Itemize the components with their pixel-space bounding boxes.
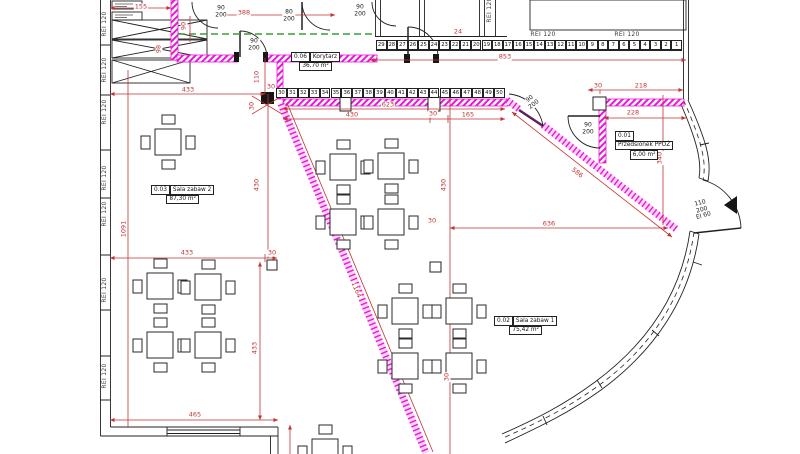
chair-icon: [318, 425, 332, 435]
chair-icon: [384, 240, 398, 250]
locker-cell: 38: [363, 88, 374, 98]
table-with-chairs: [330, 209, 357, 236]
chair-icon: [201, 363, 215, 373]
table-with-chairs: [195, 274, 222, 301]
chair-icon: [316, 215, 326, 229]
chair-icon: [201, 305, 215, 315]
dimension-label: 30: [249, 101, 256, 111]
locker-cell: 33: [309, 88, 320, 98]
dimension-label: 30: [444, 372, 451, 382]
chair-icon: [153, 259, 167, 269]
locker-cell: 10: [576, 40, 587, 50]
table-with-chairs: [392, 298, 419, 325]
table-with-chairs: [312, 439, 339, 454]
table-with-chairs: [147, 332, 174, 359]
dimension-label: 853: [498, 54, 512, 61]
chair-icon: [384, 195, 398, 205]
chair-icon: [452, 284, 466, 294]
locker-cell: 24: [429, 40, 440, 50]
dimension-label: 165: [461, 112, 475, 119]
locker-cell: 25: [418, 40, 429, 50]
room-name: Korytarz: [310, 52, 340, 62]
locker-cell: 3: [650, 40, 661, 50]
locker-cell: 7: [608, 40, 619, 50]
dimension-label: 1164: [349, 280, 362, 300]
chair-icon: [452, 329, 466, 339]
chair-icon: [343, 445, 353, 454]
chair-icon: [432, 359, 442, 373]
locker-cell: 43: [418, 88, 429, 98]
locker-cell: 50: [494, 88, 505, 98]
fire-rating-label: REI 120: [102, 11, 109, 36]
door-size-label: 80 200: [282, 10, 295, 23]
chair-icon: [161, 160, 175, 170]
chair-icon: [378, 359, 388, 373]
room-number: 0.06: [291, 52, 310, 62]
door-size-label: 90 200: [214, 6, 227, 19]
chair-icon: [378, 304, 388, 318]
locker-cell: 11: [566, 40, 577, 50]
table-with-chairs: [195, 332, 222, 359]
room-number: 0.02: [494, 316, 513, 326]
floor-plan-canvas: 1559098388248534331103062343030165302182…: [0, 0, 800, 454]
locker-cell: 23: [439, 40, 450, 50]
door-size-label: 110 200 EI 60: [691, 198, 713, 221]
table-with-chairs: [446, 298, 473, 325]
dimension-label: 636: [542, 221, 556, 228]
door-size-label: 90 200: [247, 39, 260, 52]
door-size-label: 90 200: [523, 93, 542, 112]
labels-layer: 1559098388248534331103062343030165302182…: [0, 0, 800, 454]
dimension-label: 1091: [121, 220, 128, 239]
chair-icon: [141, 135, 151, 149]
chair-icon: [298, 445, 308, 454]
locker-cell: 47: [461, 88, 472, 98]
dimension-label: 430: [254, 178, 261, 192]
door-size-label: 90 200: [581, 123, 594, 136]
chair-icon: [133, 279, 143, 293]
dimension-label: 430: [345, 112, 359, 119]
locker-cell: 21: [460, 40, 471, 50]
locker-cell: 18: [492, 40, 503, 50]
dimension-label: 433: [180, 250, 194, 257]
locker-cell: 42: [407, 88, 418, 98]
locker-cell: 41: [396, 88, 407, 98]
room-number: 0.01: [615, 131, 634, 141]
table-with-chairs: [155, 129, 182, 156]
locker-cell: 40: [385, 88, 396, 98]
locker-cell: 44: [429, 88, 440, 98]
dimension-label: 30: [427, 218, 437, 225]
chair-icon: [181, 338, 191, 352]
chair-icon: [398, 384, 412, 394]
chair-icon: [477, 304, 487, 318]
room-label: 0.06 Korytarz 36,70 m²: [291, 52, 340, 71]
table-with-chairs: [378, 209, 405, 236]
chair-icon: [336, 240, 350, 250]
chair-icon: [409, 215, 419, 229]
dimension-label: 623: [381, 102, 395, 109]
fire-rating-label: REI 120: [102, 363, 109, 388]
room-label: 0.02 Sala zabaw 1 75,42 m²: [494, 316, 557, 335]
table-with-chairs: [147, 273, 174, 300]
room-name: Przedsionek PPOŻ: [615, 141, 673, 151]
dimension-label: 388: [237, 10, 251, 17]
locker-cell: 29: [376, 40, 387, 50]
chair-icon: [201, 318, 215, 328]
chair-icon: [153, 318, 167, 328]
chair-icon: [432, 304, 442, 318]
locker-cell: 39: [374, 88, 385, 98]
locker-cell: 15: [524, 40, 535, 50]
locker-cell: 36: [341, 88, 352, 98]
room-area: 87,30 m²: [166, 195, 198, 205]
locker-cell: 22: [450, 40, 461, 50]
table-with-chairs: [392, 353, 419, 380]
locker-cell: 13: [545, 40, 556, 50]
locker-cell: 49: [483, 88, 494, 98]
chair-icon: [336, 140, 350, 150]
dimension-label: 433: [252, 341, 259, 355]
chair-icon: [186, 135, 196, 149]
room-area: 75,42 m²: [509, 326, 541, 336]
dimension-label: 430: [441, 178, 448, 192]
chair-icon: [336, 195, 350, 205]
room-label: 0.01 Przedsionek PPOŻ 6,00 m²: [615, 131, 673, 160]
dimension-label: 30: [428, 111, 438, 118]
chair-icon: [384, 139, 398, 149]
chair-icon: [161, 115, 175, 125]
room-name: Sala zabaw 2: [170, 185, 214, 195]
door-size-label: 90 200: [353, 5, 366, 18]
locker-cell: 30: [276, 88, 287, 98]
chair-icon: [201, 260, 215, 270]
chair-icon: [477, 359, 487, 373]
room-name: Sala zabaw 1: [513, 316, 557, 326]
dimension-label: 24: [453, 29, 463, 36]
fire-rating-label: REI 120: [530, 32, 555, 39]
fire-rating-label: REI 120: [102, 57, 109, 82]
locker-cell: 14: [534, 40, 545, 50]
dimension-label: 30: [267, 250, 277, 257]
dimension-label: 98: [156, 44, 163, 54]
locker-cell: 46: [450, 88, 461, 98]
fire-rating-label: REI 120: [487, 0, 494, 23]
locker-cell: 4: [640, 40, 651, 50]
locker-cell: 5: [629, 40, 640, 50]
fire-rating-label: REI 120: [102, 277, 109, 302]
locker-cell: 19: [482, 40, 493, 50]
locker-cell: 28: [387, 40, 398, 50]
dimension-label: 110: [254, 70, 261, 84]
dimension-label: 586: [569, 166, 585, 180]
chair-icon: [153, 304, 167, 314]
chair-icon: [398, 329, 412, 339]
locker-cell: 9: [587, 40, 598, 50]
chair-icon: [153, 363, 167, 373]
chair-icon: [384, 184, 398, 194]
locker-cell: 34: [320, 88, 331, 98]
dimension-label: 30: [593, 83, 603, 90]
chair-icon: [409, 159, 419, 173]
fire-rating-label: REI 120: [614, 32, 639, 39]
fire-rating-label: REI 120: [102, 99, 109, 124]
chair-icon: [181, 280, 191, 294]
chair-icon: [133, 338, 143, 352]
locker-cell: 12: [555, 40, 566, 50]
locker-cell: 1: [671, 40, 682, 50]
chair-icon: [452, 339, 466, 349]
dimension-label: 90: [181, 21, 188, 31]
locker-cell: 32: [298, 88, 309, 98]
fire-rating-label: REI 120: [102, 165, 109, 190]
dimension-label: 228: [626, 110, 640, 117]
dimension-label: 465: [188, 412, 202, 419]
locker-cell: 26: [408, 40, 419, 50]
chair-icon: [336, 185, 350, 195]
locker-cell: 31: [287, 88, 298, 98]
chair-icon: [398, 284, 412, 294]
room-label: 0.03 Sala zabaw 2 87,30 m²: [151, 185, 214, 204]
chair-icon: [364, 215, 374, 229]
dimension-label: 433: [181, 87, 195, 94]
chair-icon: [226, 280, 236, 294]
room-number: 0.03: [151, 185, 170, 195]
locker-cell: 27: [397, 40, 408, 50]
table-with-chairs: [378, 153, 405, 180]
room-area: 36,70 m²: [299, 62, 331, 72]
chair-icon: [226, 338, 236, 352]
locker-cell: 6: [619, 40, 630, 50]
locker-cell: 45: [440, 88, 451, 98]
chair-icon: [364, 159, 374, 173]
locker-cell: 16: [513, 40, 524, 50]
chair-icon: [452, 384, 466, 394]
locker-cell: 48: [472, 88, 483, 98]
dimension-label: 218: [634, 83, 648, 90]
locker-cell: 17: [503, 40, 514, 50]
room-area: 6,00 m²: [630, 150, 659, 160]
chair-icon: [398, 339, 412, 349]
locker-cell: 8: [598, 40, 609, 50]
fire-rating-label: REI 120: [102, 201, 109, 226]
chair-icon: [316, 160, 326, 174]
locker-cell: 35: [331, 88, 342, 98]
dimension-label: 30: [266, 84, 276, 91]
locker-cell: 2: [661, 40, 672, 50]
locker-cell: 20: [471, 40, 482, 50]
locker-cell: 37: [352, 88, 363, 98]
dimension-label: 155: [134, 4, 148, 11]
table-with-chairs: [330, 154, 357, 181]
